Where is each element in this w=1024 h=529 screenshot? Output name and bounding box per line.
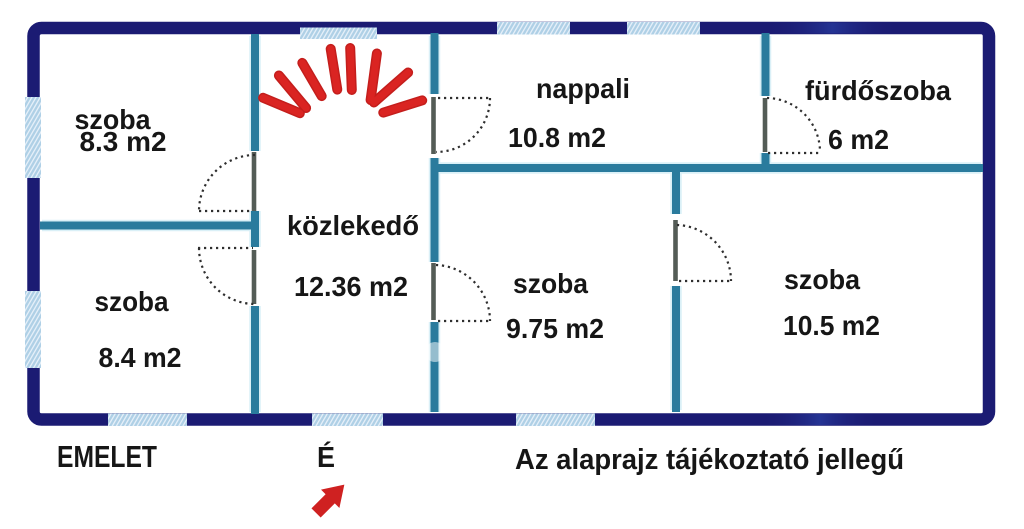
svg-text:10.5 m2: 10.5 m2 [783,310,880,341]
svg-text:EMELET: EMELET [57,439,157,474]
svg-text:fürdőszoba: fürdőszoba [805,75,952,106]
svg-text:közlekedő: közlekedő [287,210,419,241]
svg-text:6 m2: 6 m2 [828,124,889,155]
svg-text:É: É [317,440,335,474]
svg-text:9.75 m2: 9.75 m2 [506,313,604,344]
svg-text:szoba: szoba [784,264,861,295]
svg-text:szoba: szoba [95,286,170,317]
svg-text:12.36 m2: 12.36 m2 [294,271,408,302]
svg-text:8.3 m2: 8.3 m2 [80,126,167,157]
svg-text:Az alaprajz tájékoztató jelleg: Az alaprajz tájékoztató jellegű [515,444,904,476]
svg-text:szoba: szoba [513,268,589,299]
svg-text:8.4 m2: 8.4 m2 [99,342,182,373]
svg-text:nappali: nappali [536,73,630,104]
svg-text:10.8 m2: 10.8 m2 [508,122,606,153]
